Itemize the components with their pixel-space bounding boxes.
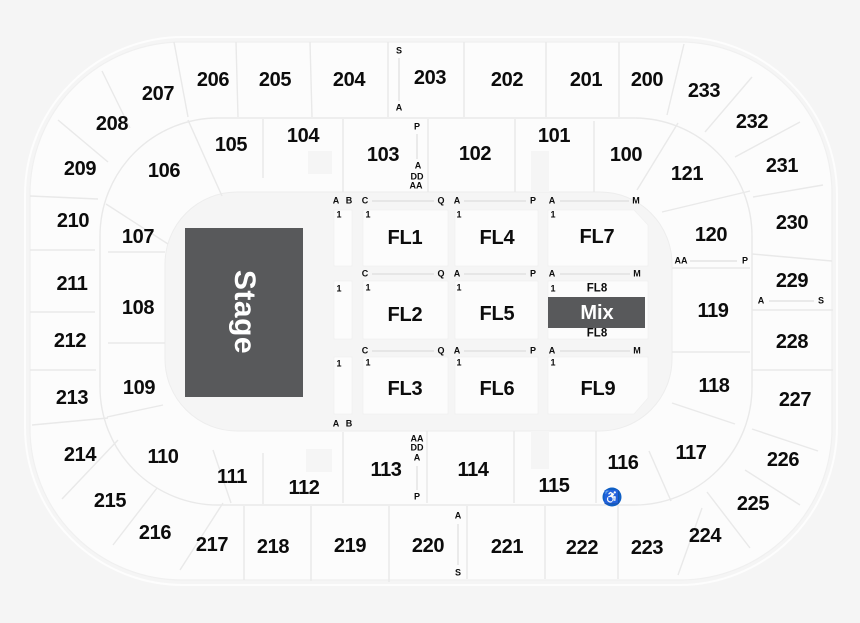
section-fl2[interactable]: FL2 — [388, 305, 423, 325]
row-letter-a: A — [333, 420, 340, 429]
section-217[interactable]: 217 — [196, 535, 228, 555]
section-228[interactable]: 228 — [776, 332, 808, 352]
stage-label: Stage — [229, 270, 259, 354]
row-letter-a: A — [454, 347, 461, 356]
row-number: 1 — [365, 211, 370, 220]
row-number: 1 — [336, 211, 341, 220]
row-letter-p: P — [742, 257, 748, 266]
section-210[interactable]: 210 — [57, 211, 89, 231]
row-letter-p: P — [414, 123, 420, 132]
section-229[interactable]: 229 — [776, 271, 808, 291]
section-214[interactable]: 214 — [64, 445, 96, 465]
fl8-row-label: FL8 — [587, 328, 607, 340]
row-letter-c: C — [362, 270, 369, 279]
section-211[interactable]: 211 — [56, 274, 87, 294]
row-number: 1 — [456, 284, 461, 293]
row-letter-p: P — [530, 270, 536, 279]
section-fl4[interactable]: FL4 — [480, 228, 515, 248]
section-231[interactable]: 231 — [766, 156, 798, 176]
section-206[interactable]: 206 — [197, 70, 229, 90]
section-224[interactable]: 224 — [689, 526, 721, 546]
section-201[interactable]: 201 — [570, 70, 602, 90]
row-letter-a: A — [396, 104, 403, 113]
row-number: 1 — [456, 359, 461, 368]
row-letter-p: P — [414, 493, 420, 502]
section-121[interactable]: 121 — [671, 164, 703, 184]
section-102[interactable]: 102 — [459, 144, 491, 164]
section-100[interactable]: 100 — [610, 145, 642, 165]
section-113[interactable]: 113 — [370, 460, 401, 480]
section-117[interactable]: 117 — [675, 443, 706, 463]
row-number: 1 — [550, 211, 555, 220]
row-number: 1 — [365, 359, 370, 368]
seating-map: Stage Mix ♿ 2002012022032042052062072082… — [0, 0, 860, 623]
section-200[interactable]: 200 — [631, 70, 663, 90]
row-letter-aa: AA — [410, 182, 423, 191]
section-202[interactable]: 202 — [491, 70, 523, 90]
section-107[interactable]: 107 — [122, 227, 154, 247]
section-221[interactable]: 221 — [491, 537, 523, 557]
section-205[interactable]: 205 — [259, 70, 291, 90]
section-213[interactable]: 213 — [56, 388, 88, 408]
section-fl3[interactable]: FL3 — [388, 379, 423, 399]
section-115[interactable]: 115 — [538, 476, 569, 496]
row-letter-a: A — [549, 197, 556, 206]
wheelchair-glyph: ♿ — [604, 491, 620, 504]
row-letter-c: C — [362, 347, 369, 356]
section-208[interactable]: 208 — [96, 114, 128, 134]
section-119[interactable]: 119 — [697, 301, 728, 321]
row-letter-b: B — [346, 420, 353, 429]
row-letter-m: M — [633, 347, 641, 356]
row-letter-a: A — [455, 512, 462, 521]
section-118[interactable]: 118 — [698, 376, 729, 396]
row-letter-s: S — [818, 297, 824, 306]
section-105[interactable]: 105 — [215, 135, 247, 155]
row-number: 1 — [365, 284, 370, 293]
section-207[interactable]: 207 — [142, 84, 174, 104]
row-letter-a: A — [414, 454, 421, 463]
section-111[interactable]: 111 — [217, 467, 247, 487]
row-letter-c: C — [362, 197, 369, 206]
section-233[interactable]: 233 — [688, 81, 720, 101]
row-letter-m: M — [632, 197, 640, 206]
section-108[interactable]: 108 — [122, 298, 154, 318]
section-227[interactable]: 227 — [779, 390, 811, 410]
section-110[interactable]: 110 — [147, 447, 178, 467]
row-letter-a: A — [333, 197, 340, 206]
row-number: 1 — [336, 285, 341, 294]
row-letter-s: S — [455, 569, 461, 578]
section-116[interactable]: 116 — [607, 453, 638, 473]
section-fl5[interactable]: FL5 — [480, 304, 515, 324]
label-layer: Stage Mix ♿ 2002012022032042052062072082… — [0, 0, 860, 623]
section-112[interactable]: 112 — [288, 478, 319, 498]
section-220[interactable]: 220 — [412, 536, 444, 556]
row-letter-aa: AA — [675, 257, 688, 266]
section-106[interactable]: 106 — [148, 161, 180, 181]
section-225[interactable]: 225 — [737, 494, 769, 514]
section-fl6[interactable]: FL6 — [480, 379, 515, 399]
row-letter-m: M — [633, 270, 641, 279]
row-number: 1 — [550, 285, 555, 294]
section-fl9[interactable]: FL9 — [581, 379, 616, 399]
row-number: 1 — [336, 360, 341, 369]
section-219[interactable]: 219 — [334, 536, 366, 556]
row-letter-a: A — [549, 270, 556, 279]
section-232[interactable]: 232 — [736, 112, 768, 132]
fl8-row-label: FL8 — [587, 283, 607, 295]
section-101[interactable]: 101 — [538, 126, 570, 146]
section-223[interactable]: 223 — [631, 538, 663, 558]
row-letter-b: B — [346, 197, 353, 206]
section-226[interactable]: 226 — [767, 450, 799, 470]
section-120[interactable]: 120 — [695, 225, 727, 245]
row-letter-a: A — [758, 297, 765, 306]
section-203[interactable]: 203 — [414, 68, 446, 88]
row-letter-q: Q — [437, 270, 444, 279]
row-letter-a: A — [454, 197, 461, 206]
row-letter-a: A — [549, 347, 556, 356]
row-letter-q: Q — [437, 347, 444, 356]
section-204[interactable]: 204 — [333, 70, 365, 90]
row-letter-p: P — [530, 197, 536, 206]
section-104[interactable]: 104 — [287, 126, 319, 146]
row-letter-dd: DD — [411, 444, 424, 453]
row-letter-s: S — [396, 47, 402, 56]
wheelchair-accessible-icon: ♿ — [603, 488, 622, 507]
section-mix-label: Mix — [580, 303, 613, 323]
section-216[interactable]: 216 — [139, 523, 171, 543]
row-letter-a: A — [415, 162, 422, 171]
row-letter-a: A — [454, 270, 461, 279]
section-103[interactable]: 103 — [367, 145, 399, 165]
row-letter-p: P — [530, 347, 536, 356]
section-fl7[interactable]: FL7 — [580, 227, 615, 247]
section-222[interactable]: 222 — [566, 538, 598, 558]
row-letter-q: Q — [437, 197, 444, 206]
section-114[interactable]: 114 — [457, 460, 488, 480]
section-209[interactable]: 209 — [64, 159, 96, 179]
section-230[interactable]: 230 — [776, 213, 808, 233]
row-number: 1 — [550, 359, 555, 368]
section-109[interactable]: 109 — [123, 378, 155, 398]
row-number: 1 — [456, 211, 461, 220]
section-218[interactable]: 218 — [257, 537, 289, 557]
section-215[interactable]: 215 — [94, 491, 126, 511]
section-212[interactable]: 212 — [54, 331, 86, 351]
section-fl1[interactable]: FL1 — [388, 228, 423, 248]
